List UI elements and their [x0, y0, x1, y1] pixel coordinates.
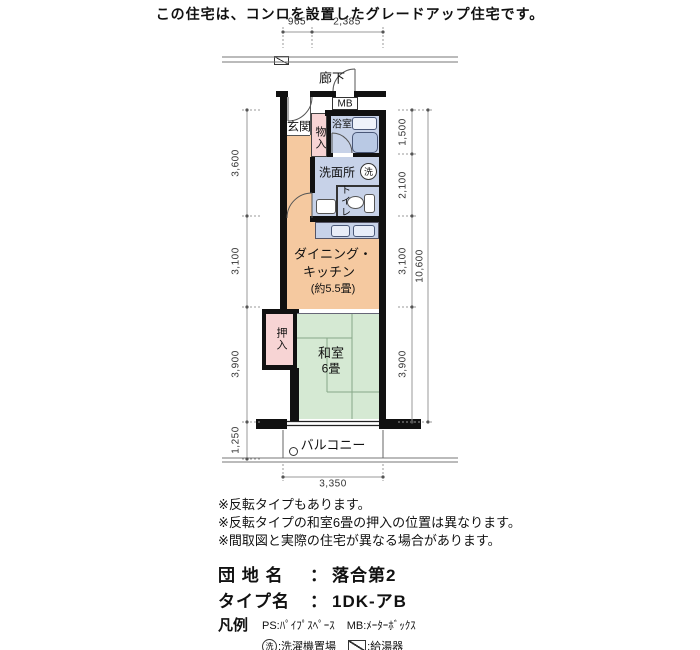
- type-name-row: タイプ名 ： 1DK-アB: [218, 586, 407, 612]
- type-name-separator: ：: [306, 587, 332, 612]
- dk-label-line2: キッチン: [303, 262, 355, 281]
- washer-legend-icon: 洗: [262, 639, 277, 650]
- toilet-label: トイレ: [337, 185, 352, 218]
- dim-right-2: 2,100: [398, 171, 409, 199]
- dim-right-1: 1,500: [398, 118, 409, 146]
- senmenjo-label: 洗面所: [319, 164, 355, 181]
- note-line: ※間取図と実際の住宅が異なる場合があります。: [218, 532, 521, 550]
- wall-left: [280, 91, 287, 309]
- legend-title: 凡例: [218, 614, 262, 635]
- monoire-label: 物入: [312, 126, 328, 150]
- dk-label-line1: ダイニング・: [294, 244, 372, 263]
- wall-senmenjo-left: [310, 157, 315, 193]
- dim-right-3: 3,100: [398, 247, 409, 275]
- washbasin: [316, 199, 336, 214]
- bath-sink: [352, 117, 377, 130]
- wall-top-mid: [310, 91, 336, 97]
- heater-legend-icon: [348, 640, 366, 650]
- wall-bath-bottom-left: [327, 153, 333, 157]
- legend-heater: :給湯器: [348, 638, 403, 650]
- dim-left-1: 3,600: [231, 149, 242, 177]
- legend-washer-text: :洗濯機置場: [278, 638, 336, 650]
- genkan-label: 玄関: [287, 118, 311, 135]
- dk-label-line3: (約5.5畳): [311, 280, 356, 296]
- building-bottom-lines: [222, 458, 458, 462]
- washing-machine-symbol: 洗: [360, 163, 377, 180]
- legend-row-2: 洗 :洗濯機置場 :給湯器: [262, 638, 428, 650]
- dim-right-4: 3,900: [398, 350, 409, 378]
- wall-washitsu-left: [290, 368, 299, 422]
- legend-ps: PS:ﾊﾟｲﾌﾟｽﾍﾟｰｽ: [262, 617, 335, 633]
- washitsu-size-label: 6畳: [322, 360, 341, 377]
- type-name-value: 1DK-アB: [332, 587, 407, 612]
- dim-left-3: 3,900: [231, 350, 242, 378]
- dim-left-2: 3,100: [231, 247, 242, 275]
- balcony-drain-icon: [289, 447, 298, 456]
- mb-label: MB: [338, 99, 353, 110]
- note-line: ※反転タイプもあります。: [218, 496, 521, 514]
- toilet-tank: [364, 194, 375, 213]
- dim-left-4: 1,250: [231, 426, 242, 454]
- corridor-label: 廊下: [319, 68, 345, 87]
- room-dk-left-strip: [287, 135, 312, 309]
- dim-top-2: 2,385: [333, 17, 361, 28]
- floor-plan: 洗: [0, 0, 700, 650]
- legend-block: 凡例 PS:ﾊﾟｲﾌﾟｽﾍﾟｰｽ MB:ﾒｰﾀｰﾎﾞｯｸｽ 洗 :洗濯機置場 :…: [218, 614, 428, 650]
- wall-bottom-left: [256, 419, 287, 429]
- info-block: 団 地 名 ： 落合第2 タイプ名 ： 1DK-アB: [218, 560, 407, 612]
- corridor-lines: [222, 57, 458, 62]
- floorplan-page: この住宅は、コンロを設置したグレードアップ住宅です。 洗: [0, 0, 700, 650]
- bathtub: [352, 132, 378, 153]
- wall-top-left: [276, 91, 288, 97]
- wall-bath-bottom-right: [353, 153, 386, 157]
- dim-top-1: 965: [288, 17, 306, 28]
- estate-name-value: 落合第2: [332, 561, 396, 586]
- legend-mb: MB:ﾒｰﾀｰﾎﾞｯｸｽ: [347, 617, 416, 633]
- note-line: ※反転タイプの和室6畳の押入の位置は異なります。: [218, 514, 521, 532]
- estate-name-separator: ：: [306, 561, 332, 586]
- washing-machine-symbol-label: 洗: [364, 165, 373, 178]
- window-lines: [287, 422, 379, 426]
- estate-name-row: 団 地 名 ： 落合第2: [218, 560, 407, 586]
- water-heater-icon: [274, 56, 289, 65]
- dim-bottom: 3,350: [319, 479, 347, 490]
- legend-washer: 洗 :洗濯機置場: [262, 638, 336, 650]
- counter-stove: [353, 225, 375, 237]
- oshiire-label: 押入: [273, 327, 289, 351]
- wall-top-right: [354, 91, 386, 97]
- balcony-label: バルコニー: [301, 435, 366, 454]
- type-name-label: タイプ名: [218, 587, 306, 612]
- notes-block: ※反転タイプもあります。 ※反転タイプの和室6畳の押入の位置は異なります。 ※間…: [218, 496, 521, 550]
- legend-row-1: 凡例 PS:ﾊﾟｲﾌﾟｽﾍﾟｰｽ MB:ﾒｰﾀｰﾎﾞｯｸｽ: [218, 614, 428, 635]
- estate-name-label: 団 地 名: [218, 561, 306, 586]
- legend-heater-text: :給湯器: [367, 638, 403, 650]
- wall-bottom-right: [379, 419, 421, 429]
- bath-label: 浴室: [332, 116, 352, 131]
- counter-sink: [331, 225, 350, 237]
- dim-right-total: 10,600: [415, 249, 426, 283]
